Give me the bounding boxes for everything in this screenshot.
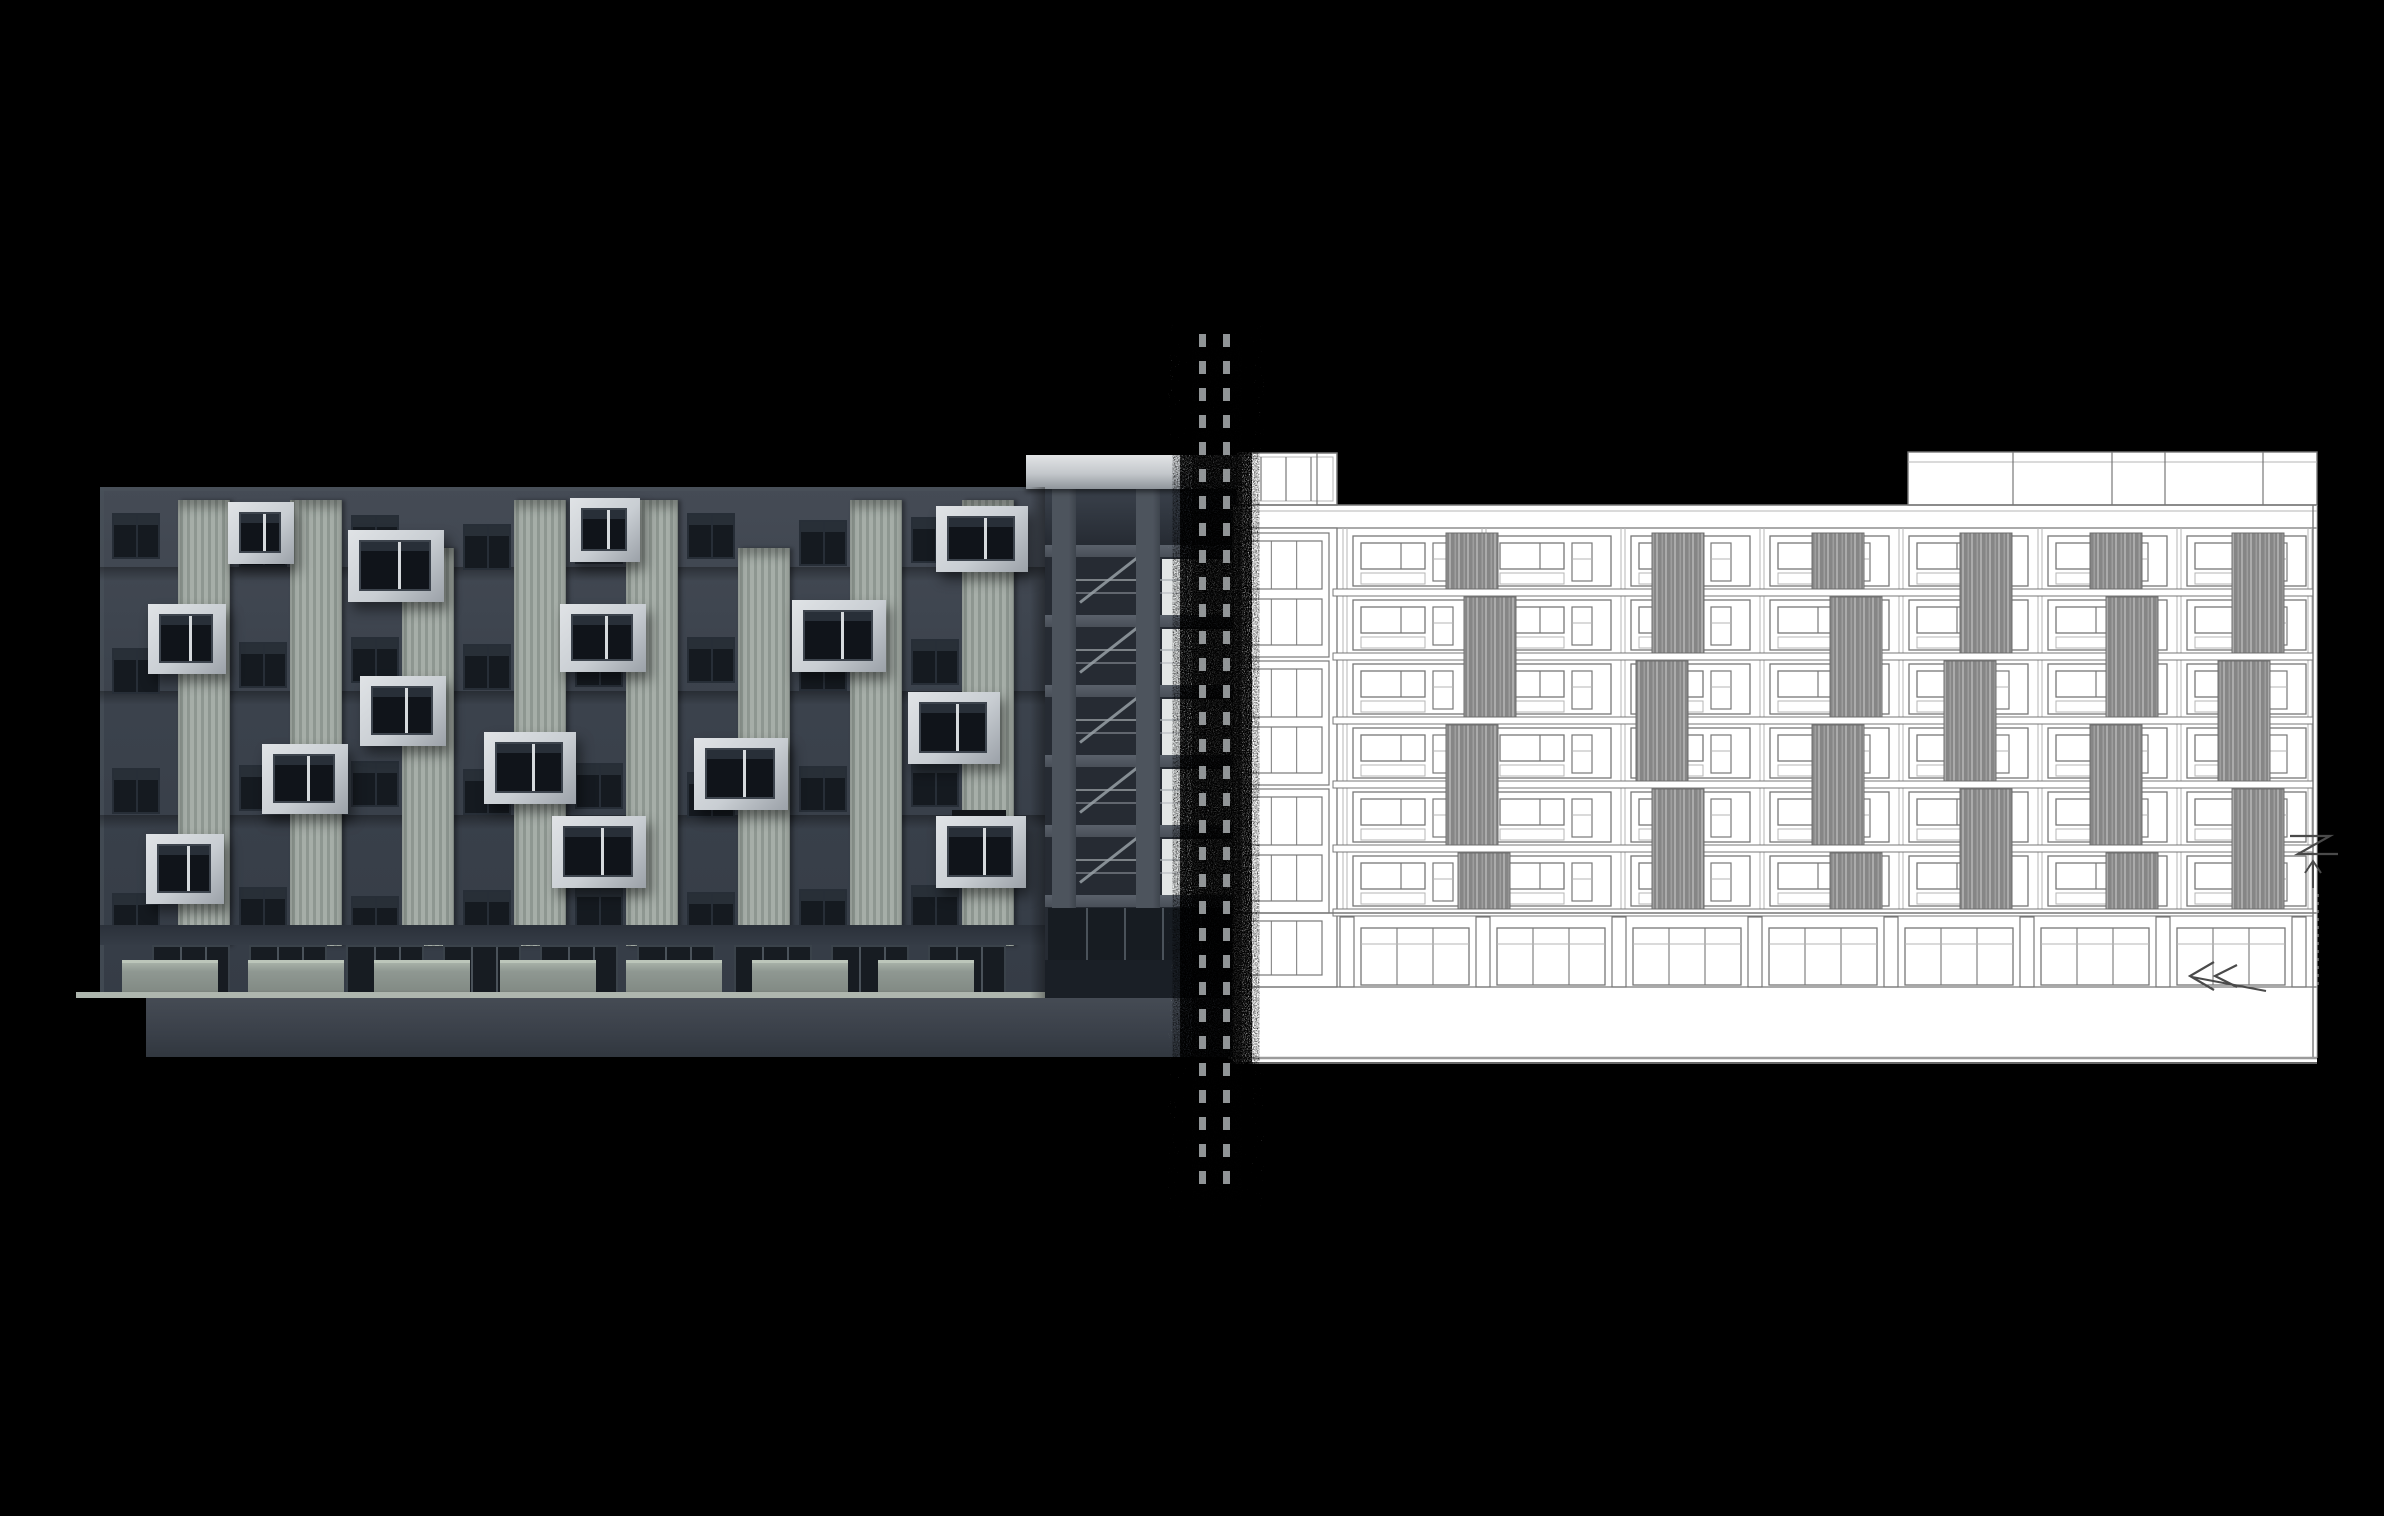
- match-line-right: [1223, 334, 1230, 1196]
- planter-top-edge: [122, 960, 218, 963]
- window-mullion: [136, 650, 138, 692]
- box-window-mullion: [983, 828, 986, 875]
- facade-roof-edge: [100, 487, 1045, 491]
- glass-reflection: [949, 518, 1013, 527]
- box-window: [146, 834, 224, 904]
- match-line-left: [1199, 334, 1206, 1196]
- window: [687, 637, 735, 683]
- window-mullion: [935, 641, 937, 683]
- storefront-mullion: [1124, 908, 1126, 960]
- box-window: [262, 744, 348, 814]
- window: [463, 644, 511, 690]
- window-mullion: [711, 639, 713, 681]
- box-window-glass: [919, 702, 987, 753]
- window-mullion: [487, 646, 489, 688]
- box-window: [560, 604, 646, 672]
- storefront-mullion: [1086, 908, 1088, 960]
- louver-strip: [402, 548, 454, 946]
- box-window-glass: [239, 512, 281, 553]
- box-window-glass: [273, 754, 335, 803]
- box-window-glass: [157, 844, 211, 893]
- window-mullion: [823, 522, 825, 564]
- planter-top-edge: [500, 960, 596, 963]
- box-window-mullion: [956, 704, 959, 751]
- window: [463, 524, 511, 570]
- balcony-roof-slab: [1026, 455, 1243, 489]
- box-window-mullion: [605, 616, 608, 659]
- box-window-glass: [159, 614, 213, 663]
- window-mullion: [935, 887, 937, 929]
- box-window: [936, 506, 1028, 572]
- facade-recess-shadow: [1030, 487, 1045, 998]
- window-mullion: [136, 770, 138, 812]
- balcony-base-band: [1045, 960, 1243, 998]
- window: [911, 761, 959, 807]
- storefront-mullion: [471, 947, 473, 996]
- box-window: [360, 676, 446, 746]
- planter-top-edge: [374, 960, 470, 963]
- box-window-glass: [563, 826, 633, 877]
- window-mullion: [711, 515, 713, 557]
- planter-top-edge: [248, 960, 344, 963]
- box-window-mullion: [601, 828, 604, 875]
- balcony-window-mullion: [1185, 559, 1187, 615]
- planter-top-edge: [878, 960, 974, 963]
- box-window: [552, 816, 646, 888]
- box-window-mullion: [189, 616, 192, 661]
- glass-reflection: [361, 542, 429, 551]
- storefront-header-band: [100, 925, 1045, 945]
- box-window: [908, 692, 1000, 764]
- window: [575, 763, 623, 809]
- box-window-mullion: [532, 744, 535, 791]
- window: [799, 520, 847, 566]
- box-window: [228, 502, 294, 564]
- window: [351, 761, 399, 807]
- box-window-mullion: [984, 518, 987, 559]
- box-window: [570, 498, 640, 562]
- box-window: [936, 816, 1026, 888]
- window: [911, 639, 959, 685]
- glass-reflection: [921, 704, 985, 713]
- box-window-mullion: [607, 510, 610, 549]
- storefront-mullion: [1162, 908, 1164, 960]
- box-window-glass: [571, 614, 633, 661]
- glass-reflection: [805, 612, 871, 621]
- box-window: [148, 604, 226, 674]
- glass-reflection: [241, 514, 279, 523]
- window-mullion: [599, 887, 601, 929]
- box-window-mullion: [841, 612, 844, 659]
- box-window-mullion: [398, 542, 401, 589]
- balcony-window-mullion: [1185, 769, 1187, 825]
- glass-reflection: [565, 828, 631, 837]
- window-mullion: [375, 763, 377, 805]
- window-mullion: [136, 515, 138, 557]
- floor-slab-shadow: [100, 567, 1045, 581]
- storefront-mullion: [981, 947, 983, 996]
- floor-slab-shadow: [100, 691, 1045, 705]
- box-window-mullion: [187, 846, 190, 891]
- box-window: [694, 738, 788, 810]
- planter-top-edge: [626, 960, 722, 963]
- window-mullion: [375, 639, 377, 681]
- box-window-glass: [705, 748, 775, 799]
- box-window-glass: [947, 826, 1013, 877]
- box-window-glass: [581, 508, 627, 551]
- render-building-panel: [0, 0, 2384, 1516]
- comparison-sheet: [0, 0, 2384, 1516]
- planter-top-edge: [752, 960, 848, 963]
- glass-reflection: [373, 688, 431, 697]
- balcony-window-mullion: [1185, 839, 1187, 895]
- window: [112, 513, 160, 559]
- facade-left-edge: [100, 487, 104, 998]
- storefront-mullion: [859, 947, 861, 996]
- box-window-glass: [495, 742, 563, 793]
- glass-reflection: [707, 750, 773, 759]
- window-mullion: [823, 768, 825, 810]
- box-window-glass: [371, 686, 433, 735]
- glass-reflection: [275, 756, 333, 765]
- box-window-mullion: [743, 750, 746, 797]
- louver-strip: [850, 500, 902, 946]
- glass-reflection: [497, 744, 561, 753]
- glass-reflection: [159, 846, 209, 855]
- glass-reflection: [949, 828, 1011, 837]
- window-mullion: [935, 763, 937, 805]
- plinth: [146, 998, 1244, 1057]
- box-window: [348, 530, 444, 602]
- box-window-glass: [947, 516, 1015, 561]
- storefront-mullion: [496, 947, 498, 996]
- balcony-window-mullion: [1185, 699, 1187, 755]
- glass-reflection: [161, 616, 211, 625]
- box-window-glass: [359, 540, 431, 591]
- window: [687, 513, 735, 559]
- box-window: [792, 600, 886, 672]
- window-mullion: [599, 765, 601, 807]
- window-mullion: [263, 644, 265, 686]
- window: [799, 766, 847, 812]
- glass-reflection: [573, 616, 631, 625]
- balcony-ground-glass: [1048, 908, 1238, 960]
- box-window-glass: [803, 610, 873, 661]
- box-window-mullion: [263, 514, 266, 551]
- balcony-window-mullion: [1185, 629, 1187, 685]
- box-window-mullion: [307, 756, 310, 801]
- window: [112, 768, 160, 814]
- louver-strip: [290, 500, 342, 946]
- box-window: [484, 732, 576, 804]
- box-window-mullion: [405, 688, 408, 733]
- glass-reflection: [583, 510, 625, 519]
- window: [239, 642, 287, 688]
- window-mullion: [487, 526, 489, 568]
